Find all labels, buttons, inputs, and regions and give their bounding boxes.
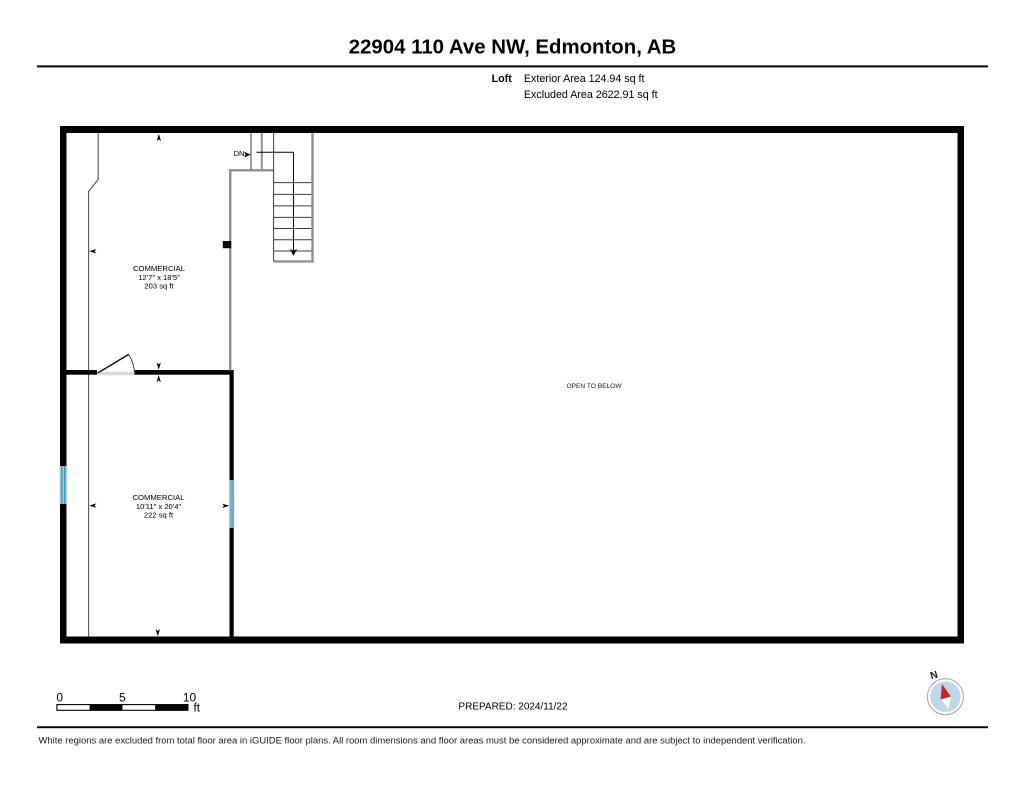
svg-text:222 sq ft: 222 sq ft [144,510,174,519]
svg-text:5: 5 [119,691,126,705]
svg-text:22904 110 Ave NW, Edmonton, AB: 22904 110 Ave NW, Edmonton, AB [349,37,676,59]
svg-text:OPEN TO BELOW: OPEN TO BELOW [566,383,622,390]
svg-text:DN: DN [234,149,245,158]
svg-text:COMMERCIAL: COMMERCIAL [132,493,185,502]
svg-text:Excluded Area 2622.91 sq ft: Excluded Area 2622.91 sq ft [524,89,658,101]
svg-text:White regions are excluded fro: White regions are excluded from total fl… [39,736,806,747]
svg-text:COMMERCIAL: COMMERCIAL [133,264,186,273]
svg-text:203 sq ft: 203 sq ft [144,281,174,290]
svg-text:ft: ft [194,703,201,715]
svg-text:PREPARED: 2024/11/22: PREPARED: 2024/11/22 [458,701,568,712]
svg-text:Loft: Loft [492,73,513,85]
svg-text:0: 0 [56,691,63,705]
svg-text:Exterior Area 124.94 sq ft: Exterior Area 124.94 sq ft [524,73,645,85]
